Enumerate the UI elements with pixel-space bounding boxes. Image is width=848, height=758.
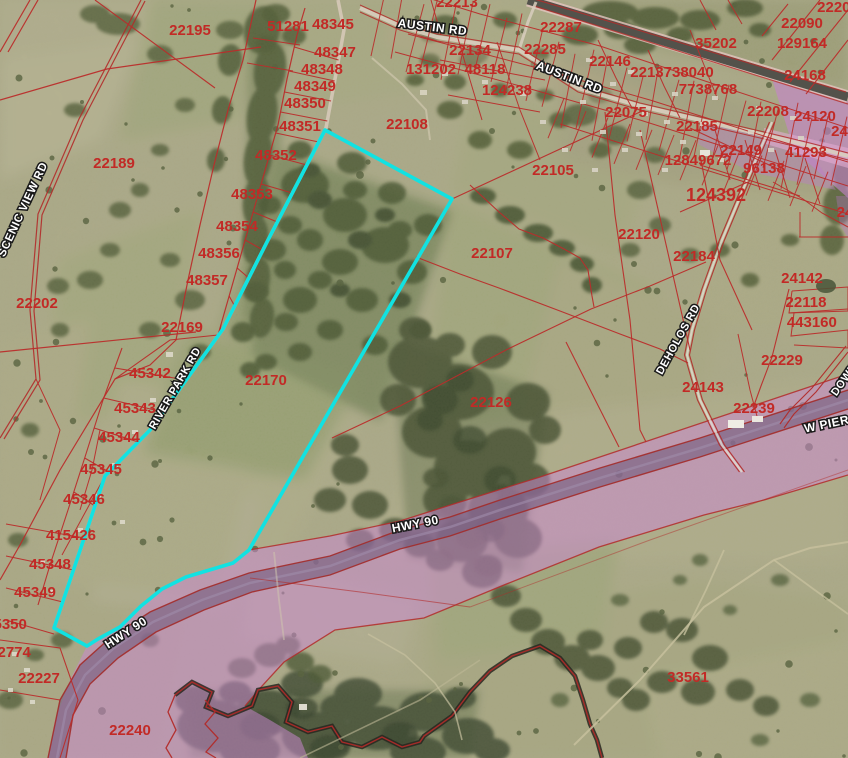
svg-text:22146: 22146 [589,53,631,70]
svg-text:22285: 22285 [524,41,566,58]
svg-text:48347: 48347 [314,44,356,61]
svg-text:22240: 22240 [109,722,151,739]
svg-text:48345: 48345 [312,16,354,33]
svg-text:22195: 22195 [169,22,211,39]
svg-text:33561: 33561 [667,669,709,686]
svg-text:22075: 22075 [605,104,647,121]
svg-text:48351: 48351 [279,118,321,135]
svg-text:45343: 45343 [114,400,156,417]
svg-text:35202: 35202 [695,35,737,52]
svg-text:45349: 45349 [14,584,56,601]
svg-text:48352: 48352 [255,147,297,164]
svg-text:2213738040: 2213738040 [630,64,713,81]
svg-text:22105: 22105 [532,162,574,179]
svg-text:22120: 22120 [618,226,660,243]
svg-text:4: 4 [787,314,796,331]
svg-text:48348: 48348 [301,61,343,78]
svg-text:22227: 22227 [18,670,60,687]
svg-text:129164: 129164 [777,35,828,52]
svg-text:415426: 415426 [46,527,96,544]
svg-text:124392: 124392 [686,185,746,205]
svg-text:22108: 22108 [386,116,428,133]
svg-text:45346: 45346 [63,491,105,508]
svg-text:22202: 22202 [16,295,58,312]
svg-text:45345: 45345 [80,461,122,478]
svg-text:22185: 22185 [676,118,718,135]
svg-text:22107: 22107 [471,245,513,262]
svg-text:12849672: 12849672 [665,152,732,169]
svg-text:51281: 51281 [267,18,309,35]
svg-text:42774: 42774 [0,644,32,661]
svg-text:22134: 22134 [449,42,491,59]
svg-text:48356: 48356 [198,245,240,262]
svg-text:48118: 48118 [465,61,506,78]
svg-text:22189: 22189 [93,155,135,172]
svg-text:22184: 22184 [673,248,715,265]
svg-text:22126: 22126 [470,394,512,411]
svg-text:45344: 45344 [98,429,140,446]
svg-text:48353: 48353 [231,186,273,203]
svg-text:22170: 22170 [245,372,287,389]
svg-text:24142: 24142 [781,270,823,287]
svg-text:22203: 22203 [817,0,848,16]
svg-text:41293: 41293 [785,144,827,161]
svg-text:45348: 45348 [29,556,71,573]
svg-text:96138: 96138 [743,160,785,177]
svg-text:48357: 48357 [186,272,228,289]
svg-text:22213: 22213 [436,0,478,11]
svg-text:22229: 22229 [761,352,803,369]
svg-text:22208: 22208 [747,103,789,120]
svg-text:22090: 22090 [781,15,823,32]
svg-text:45342: 45342 [129,365,171,382]
svg-text:24168: 24168 [784,67,826,84]
svg-text:22287: 22287 [540,19,582,36]
svg-text:45350: 45350 [0,616,27,633]
svg-text:43160: 43160 [795,314,837,331]
svg-text:24120: 24120 [794,108,836,125]
svg-text:24143: 24143 [682,379,724,396]
svg-text:7738768: 7738768 [679,81,737,98]
svg-text:22118: 22118 [786,294,827,311]
svg-text:48354: 48354 [216,218,258,235]
svg-text:24: 24 [837,204,848,221]
svg-text:24149: 24149 [831,123,848,140]
svg-text:48350: 48350 [284,95,326,112]
svg-text:22169: 22169 [161,319,203,336]
svg-text:22239: 22239 [733,400,775,417]
svg-text:48349: 48349 [294,78,336,95]
svg-text:124238: 124238 [482,82,532,99]
svg-text:131202: 131202 [406,61,456,78]
